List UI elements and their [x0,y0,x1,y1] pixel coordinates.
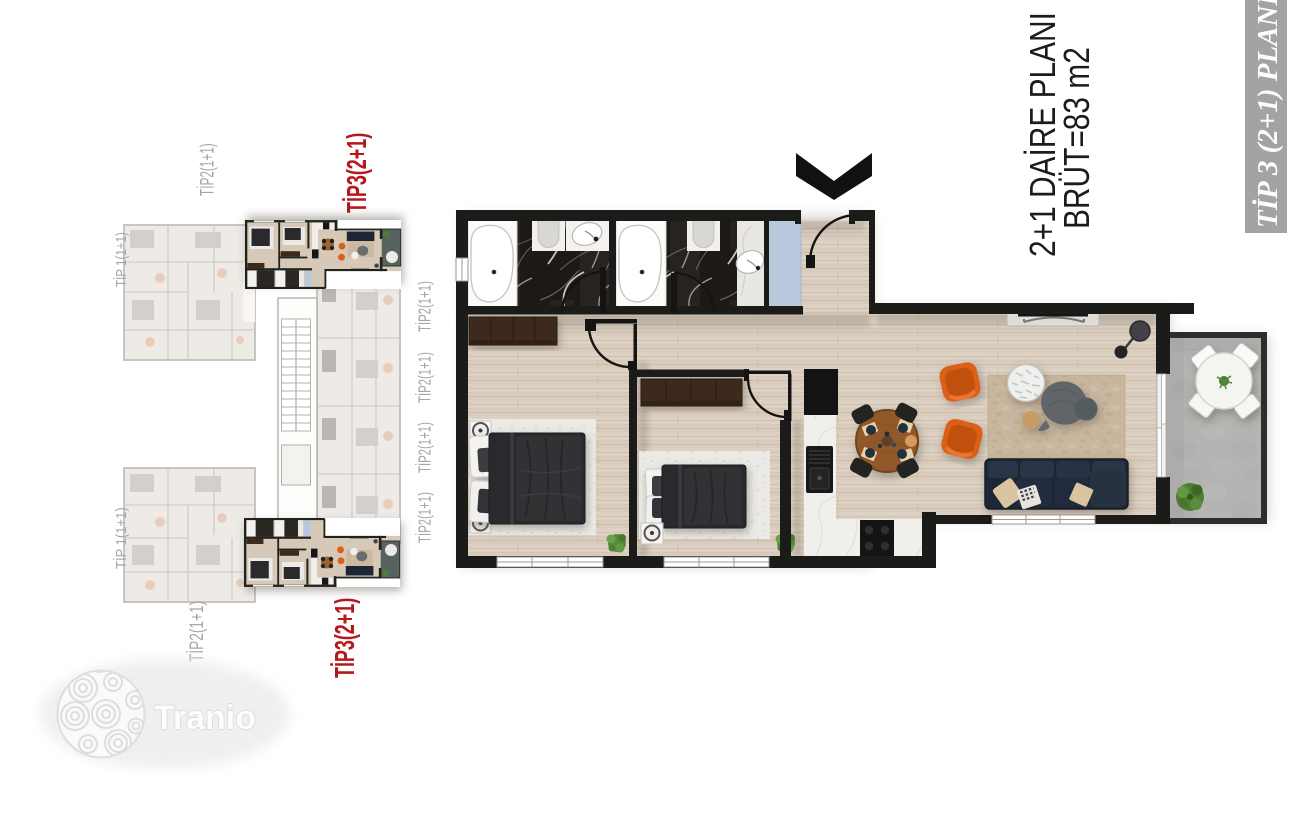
svg-text:TİP2(1+1): TİP2(1+1) [186,601,208,662]
svg-text:TİP2(1+1): TİP2(1+1) [414,422,435,473]
svg-text:Tranio: Tranio [154,699,256,737]
svg-text:TİP3(2+1): TİP3(2+1) [329,598,360,678]
svg-text:TİP 1(1+1): TİP 1(1+1) [111,507,129,569]
svg-text:TİP2(1+1): TİP2(1+1) [195,143,218,196]
svg-text:TİP2(1+1): TİP2(1+1) [414,281,435,332]
svg-text:TİP 1(1+1): TİP 1(1+1) [113,232,130,287]
svg-text:TİP 3 (2+1) PLANI: TİP 3 (2+1) PLANI [1251,0,1284,228]
svg-text:TİP2(1+1): TİP2(1+1) [414,492,435,543]
svg-text:BRÜT=83 m2: BRÜT=83 m2 [1057,47,1097,229]
svg-text:TİP3(2+1): TİP3(2+1) [341,133,372,213]
svg-text:TİP2(1+1): TİP2(1+1) [414,352,435,403]
